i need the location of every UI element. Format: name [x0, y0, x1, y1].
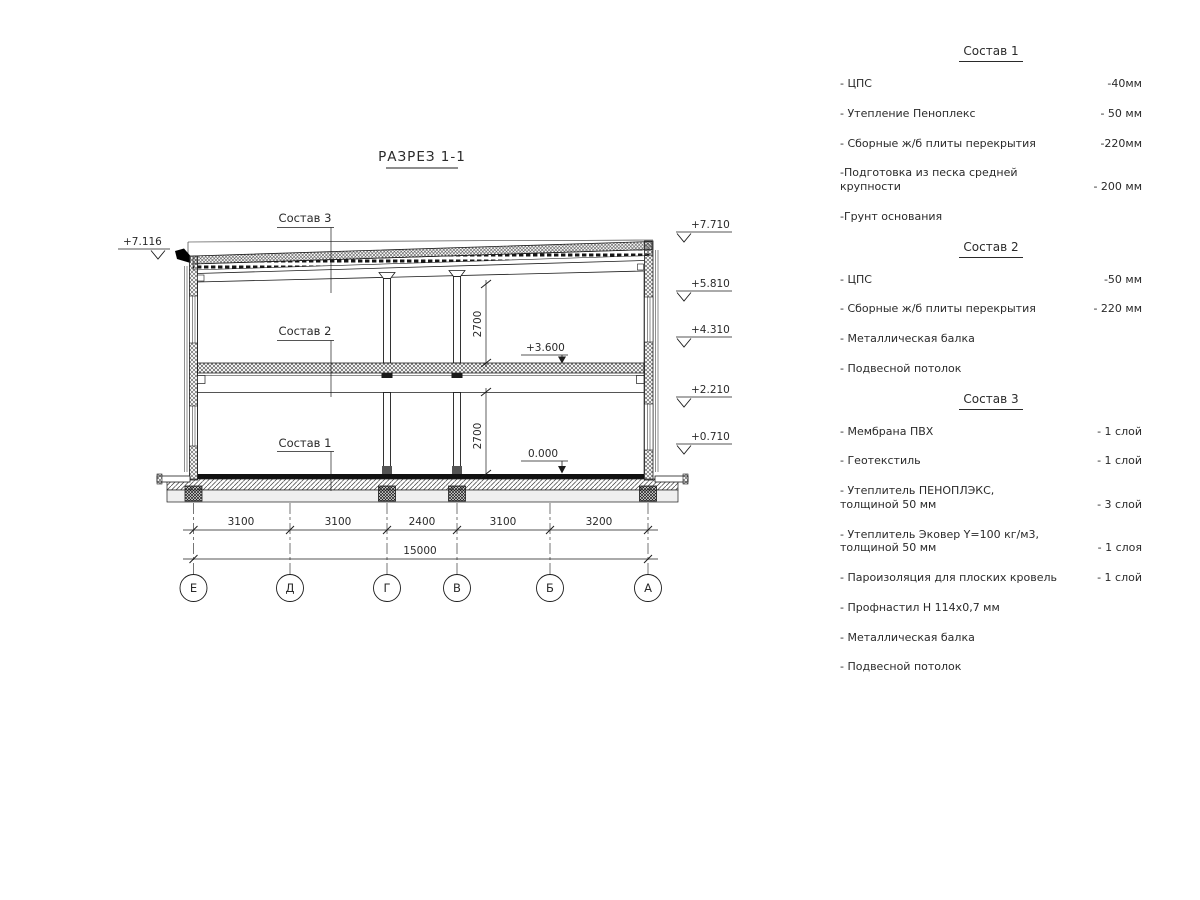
- legend-section-title-2: Состав 2: [840, 240, 1142, 258]
- height-dim-upper: 2700: [472, 311, 484, 338]
- footing: [640, 486, 657, 501]
- label-sostav-1: Состав 1: [279, 436, 332, 450]
- column-lower-g: [384, 393, 391, 475]
- height-dim-lower: 2700: [472, 423, 484, 450]
- legend-item-name: - ЦПС: [840, 273, 872, 287]
- span-dim: 2400: [409, 516, 436, 528]
- legend-item: - ЦПС -40мм: [840, 77, 1142, 91]
- upper-columns: [198, 264, 644, 363]
- span-dim: 3100: [490, 516, 517, 528]
- axis-letter: Г: [383, 581, 390, 595]
- floor-slab: [198, 363, 645, 393]
- legend-item-name: - Подвесной потолок: [840, 660, 961, 674]
- legend-section-title-1: Состав 1: [840, 44, 1142, 62]
- legend-item: -Грунт основания: [840, 210, 1142, 224]
- legend-item: - Утеплитель Эковер Y=100 кг/м3, толщино…: [840, 528, 1142, 556]
- legend-item-name: - Утепление Пеноплекс: [840, 107, 976, 121]
- legend-item-value: - 200 мм: [1083, 180, 1142, 194]
- legend-item-name: - Металлическая балка: [840, 332, 975, 346]
- elevation-value: +7.116: [123, 236, 162, 248]
- drawing-title: РАЗРЕЗ 1-1: [378, 149, 466, 168]
- legend-item: - Мембрана ПВХ - 1 слой: [840, 425, 1142, 439]
- elevation-mark: +2.210: [676, 384, 732, 407]
- axis-extension-lines: [194, 503, 649, 574]
- axis-letter: А: [644, 581, 652, 595]
- base-band: [167, 490, 678, 502]
- elevation-value: +5.810: [691, 278, 730, 290]
- label-sostav-2: Состав 2: [279, 324, 332, 338]
- axis-letter: В: [453, 581, 461, 595]
- legend-item-name: - Металлическая балка: [840, 631, 975, 645]
- elevation-value: +4.310: [691, 324, 730, 336]
- title-text: РАЗРЕЗ 1-1: [378, 149, 466, 165]
- span-dim: 3200: [586, 516, 613, 528]
- span-dim: 3100: [228, 516, 255, 528]
- footing: [379, 486, 396, 501]
- right-wall-window-lower: [645, 404, 654, 450]
- legend-section-title-3: Состав 3: [840, 392, 1142, 410]
- floor-level-marks: +3.600 0.000: [521, 342, 568, 474]
- legend-item-value: - 3 слой: [1087, 498, 1142, 512]
- left-wall-window-lower: [190, 406, 198, 446]
- legend-item: - Сборные ж/б плиты перекрытия - 220 мм: [840, 302, 1142, 316]
- footing: [449, 486, 466, 501]
- legend-item-name: -Подготовка из песка средней крупности: [840, 166, 1017, 194]
- legend-item-name: - Сборные ж/б плиты перекрытия: [840, 302, 1036, 316]
- axis-letter: Д: [286, 581, 295, 595]
- legend-item: - Утеплитель ПЕНОПЛЭКС, толщиной 50 мм -…: [840, 484, 1142, 512]
- label-sostav-3: Состав 3: [279, 211, 332, 225]
- right-wall-window-upper: [645, 297, 654, 342]
- roof-ceiling-line: [197, 271, 644, 282]
- elevation-value: +7.710: [691, 219, 730, 231]
- total-dim: 15000: [403, 545, 436, 557]
- legend-item-name: - Утеплитель Эковер Y=100 кг/м3, толщино…: [840, 528, 1039, 556]
- legend-item: - Геотекстиль - 1 слой: [840, 454, 1142, 468]
- right-wall: [644, 241, 658, 480]
- legend-item-value: -50 мм: [1094, 273, 1142, 287]
- legend-item-value: -220мм: [1090, 137, 1142, 151]
- sand-preparation-band: [167, 479, 678, 490]
- total-dimension-row: 15000: [183, 545, 658, 563]
- lower-columns: [382, 393, 462, 475]
- legend-item: - Сборные ж/б плиты перекрытия -220мм: [840, 137, 1142, 151]
- legend-title-text: Состав 3: [959, 392, 1022, 410]
- axis-bubbles: Е Д Г В Б А: [180, 575, 662, 602]
- legend-item: - ЦПС -50 мм: [840, 273, 1142, 287]
- legend-item-name: - Пароизоляция для плоских кровель: [840, 571, 1057, 585]
- span-dimension-row: 3100 3100 2400 3100 3200: [183, 516, 658, 534]
- legend-item-value: - 1 слой: [1087, 571, 1142, 585]
- elevation-mark: +4.310: [676, 324, 732, 347]
- axis-letter: Е: [190, 581, 197, 595]
- span-dim: 3100: [325, 516, 352, 528]
- footing: [185, 486, 202, 501]
- legend-item-name: - Геотекстиль: [840, 454, 921, 468]
- legend-item-name: - ЦПС: [840, 77, 872, 91]
- materials-legend: Состав 1 - ЦПС -40мм - Утепление Пенопле…: [840, 44, 1142, 690]
- left-wall: [185, 256, 198, 480]
- legend-item: - Подвесной потолок: [840, 362, 1142, 376]
- elevation-mark-left: +7.116: [118, 236, 170, 259]
- legend-title-text: Состав 2: [959, 240, 1022, 258]
- legend-item-name: - Сборные ж/б плиты перекрытия: [840, 137, 1036, 151]
- legend-item: - Металлическая балка: [840, 332, 1142, 346]
- roof-assembly: [175, 242, 652, 283]
- legend-item-value: - 220 мм: [1083, 302, 1142, 316]
- legend-item-value: - 1 слой: [1087, 454, 1142, 468]
- legend-item-name: - Утеплитель ПЕНОПЛЭКС, толщиной 50 мм: [840, 484, 994, 512]
- drawing-sheet: РАЗРЕЗ 1-1: [0, 0, 1200, 900]
- legend-item: - Подвесной потолок: [840, 660, 1142, 674]
- elevation-value: +2.210: [691, 384, 730, 396]
- column-upper-g: [384, 279, 391, 364]
- elevation-value: +0.710: [691, 431, 730, 443]
- axis-letter: Б: [546, 581, 554, 595]
- legend-item: - Пароизоляция для плоских кровель - 1 с…: [840, 571, 1142, 585]
- level-0000: 0.000: [528, 448, 558, 460]
- foundation: [157, 474, 688, 502]
- column-upper-v: [454, 277, 461, 364]
- elevation-mark: +0.710: [676, 431, 732, 454]
- level-3600: +3.600: [526, 342, 565, 354]
- legend-item-name: - Подвесной потолок: [840, 362, 961, 376]
- elevation-marks-right: +7.710 +5.810 +4.310 +2.210 +0.710: [676, 219, 732, 454]
- legend-item-name: -Грунт основания: [840, 210, 942, 224]
- legend-item: -Подготовка из песка средней крупности -…: [840, 166, 1142, 194]
- legend-item-value: -40мм: [1097, 77, 1142, 91]
- section-drawing: РАЗРЕЗ 1-1: [0, 0, 790, 650]
- floor-finish-band: [198, 474, 645, 479]
- legend-item-value: - 50 мм: [1090, 107, 1142, 121]
- legend-item-name: - Мембрана ПВХ: [840, 425, 933, 439]
- legend-item-value: - 1 слой: [1087, 425, 1142, 439]
- legend-item: - Утепление Пеноплекс - 50 мм: [840, 107, 1142, 121]
- legend-item-value: - 1 слоя: [1088, 541, 1142, 555]
- legend-item: - Профнастил Н 114х0,7 мм: [840, 601, 1142, 615]
- legend-item-name: - Профнастил Н 114х0,7 мм: [840, 601, 1000, 615]
- legend-title-text: Состав 1: [959, 44, 1022, 62]
- elevation-mark: +7.710: [676, 219, 732, 242]
- column-lower-v: [454, 393, 461, 475]
- left-wall-window-upper: [190, 296, 198, 343]
- elevation-mark: +5.810: [676, 278, 732, 301]
- legend-item: - Металлическая балка: [840, 631, 1142, 645]
- height-dimensions: 2700 2700: [472, 280, 491, 478]
